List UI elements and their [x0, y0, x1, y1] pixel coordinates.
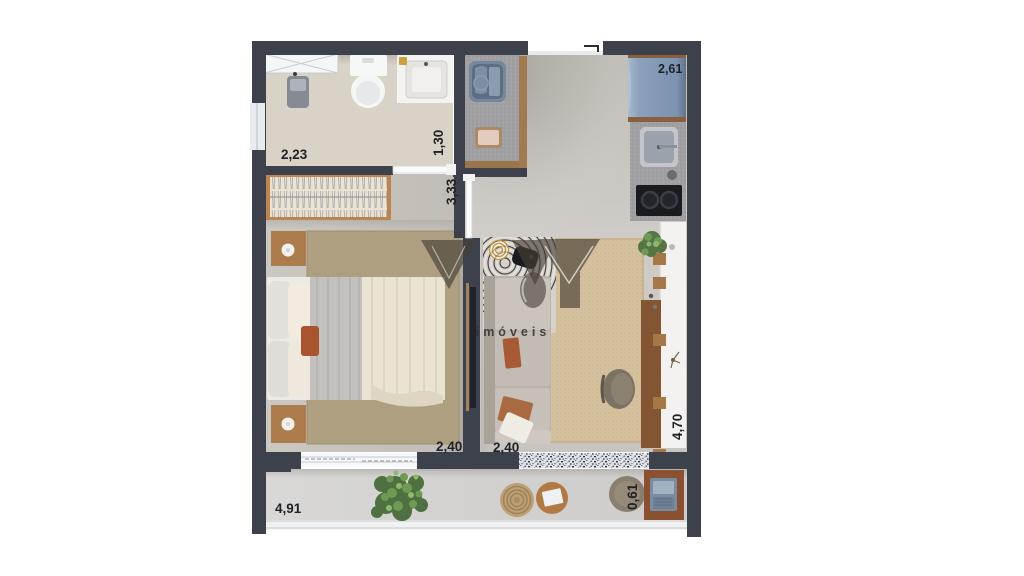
svg-text:4,70: 4,70: [670, 414, 685, 440]
svg-text:2,61: 2,61: [658, 62, 682, 76]
svg-text:imóveis: imóveis: [476, 325, 551, 339]
svg-text:2,23: 2,23: [281, 147, 308, 162]
svg-text:0,61: 0,61: [625, 483, 640, 510]
svg-text:1,30: 1,30: [431, 130, 446, 156]
svg-text:2,40: 2,40: [436, 439, 462, 454]
svg-text:3,33: 3,33: [444, 178, 459, 205]
svg-text:4,91: 4,91: [275, 501, 302, 516]
svg-text:2,40: 2,40: [493, 440, 519, 455]
